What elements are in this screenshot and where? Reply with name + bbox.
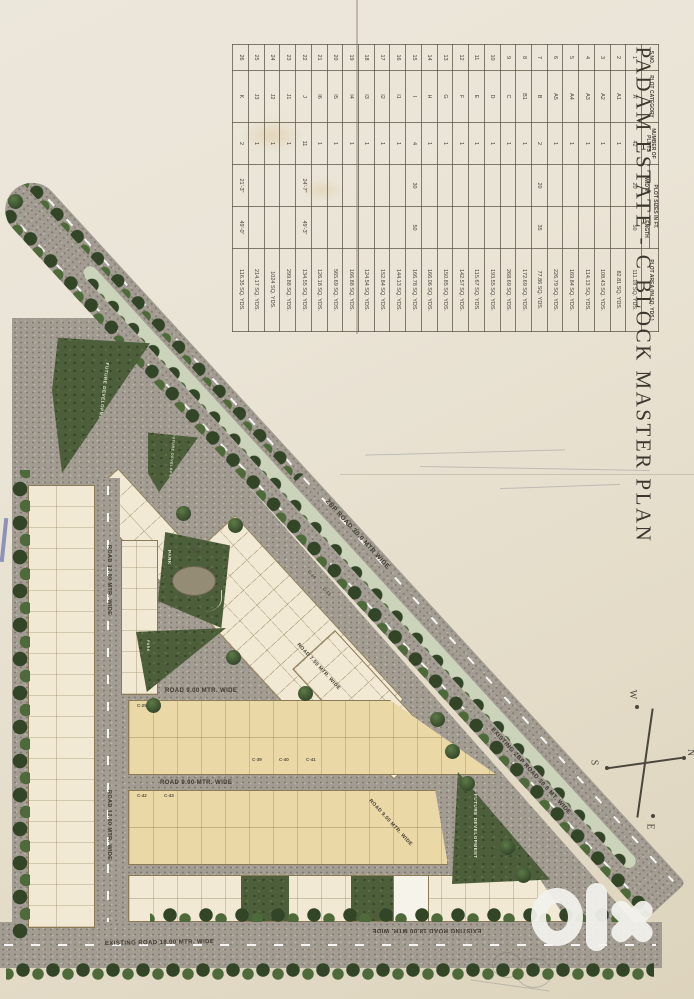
table-cell <box>563 207 579 249</box>
table-row: 18I31124.54 SQ. YDS. <box>359 45 375 332</box>
table-cell: 2 <box>531 123 547 165</box>
compass-icon: W N E S <box>585 685 694 835</box>
park-path <box>192 590 222 612</box>
table-row: 8B11172.69 SQ. YDS. <box>516 45 532 332</box>
table-cell: 299.88 SQ. YDS. <box>280 249 296 332</box>
table-cell: I6 <box>311 71 327 123</box>
table-cell <box>390 207 406 249</box>
table-cell <box>484 165 500 207</box>
compass-dot <box>651 814 655 818</box>
table-cell: 49'-3" <box>296 207 312 249</box>
table-cell <box>327 207 343 249</box>
table-cell <box>516 165 532 207</box>
left-plots-column <box>28 485 95 928</box>
table-cell: 1 <box>421 123 437 165</box>
table-row: 3A21108.43 SQ. YDS. <box>594 45 610 332</box>
road-label-9m: ROAD 9.00 MTR. WIDE <box>165 688 237 694</box>
table-cell <box>264 165 280 207</box>
table-cell <box>311 207 327 249</box>
table-cell <box>547 207 563 249</box>
table-row: 17I21152.84 SQ. YDS. <box>374 45 390 332</box>
table-cell: 226.79 SQ. YDS. <box>547 249 563 332</box>
table-cell: 77.86 SQ. YDS. <box>531 249 547 332</box>
road-label-12m: ROAD 12.00 MTR. WIDE <box>106 545 112 615</box>
table-row: 16I11144.13 SQ. YDS. <box>390 45 406 332</box>
table-cell: I5 <box>327 71 343 123</box>
tree-icon <box>146 698 161 713</box>
table-cell: 11 <box>296 123 312 165</box>
table-cell: 1 <box>594 123 610 165</box>
table-cell <box>563 165 579 207</box>
table-cell: B1 <box>516 71 532 123</box>
plot-label: C-25 <box>137 703 147 708</box>
table-cell: 35 <box>531 207 547 249</box>
table-cell: 214.17 SQ. YDS. <box>249 249 265 332</box>
table-cell: A4 <box>563 71 579 123</box>
table-cell: J3 <box>249 71 265 123</box>
table-cell: 18 <box>359 45 375 71</box>
table-cell: 12 <box>453 45 469 71</box>
table-row: 6A51226.79 SQ. YDS. <box>547 45 563 332</box>
table-cell: 1 <box>374 123 390 165</box>
table-cell: 150.85 SQ. YDS. <box>437 249 453 332</box>
table-cell: 172.69 SQ. YDS. <box>516 249 532 332</box>
table-cell <box>374 207 390 249</box>
table-cell: 23 <box>280 45 296 71</box>
table-row: 13G1150.85 SQ. YDS. <box>437 45 453 332</box>
table-cell <box>594 165 610 207</box>
table-cell: 30 <box>406 165 422 207</box>
table-cell: D <box>484 71 500 123</box>
table-row: 9C1268.69 SQ. YDS. <box>500 45 516 332</box>
table-cell: 15 <box>406 45 422 71</box>
table-cell: E <box>469 71 485 123</box>
plot-label: C-39 <box>252 757 262 762</box>
table-cell: C <box>500 71 516 123</box>
compass-east: E <box>645 823 656 829</box>
table-cell: 144.13 SQ. YDS. <box>390 249 406 332</box>
table-cell: 1 <box>469 123 485 165</box>
table-cell <box>579 165 595 207</box>
pencil-scribble <box>500 484 620 489</box>
table-cell: 142.57 SQ. YDS. <box>453 249 469 332</box>
table-cell: 1 <box>516 123 532 165</box>
table-cell: J2 <box>264 71 280 123</box>
olx-o-shape <box>531 888 583 946</box>
plot-table-body: 1A422050111.18 SQ. YDS.2A1182.81 SQ. YDS… <box>233 45 642 332</box>
table-cell: 169.84 SQ. YDS. <box>563 249 579 332</box>
table-cell: 1 <box>484 123 500 165</box>
table-cell <box>327 165 343 207</box>
table-cell <box>484 207 500 249</box>
table-cell: 193.55 SQ. YDS. <box>484 249 500 332</box>
tree-icon <box>228 518 243 533</box>
plot-table-wrap: S.NO. PLOT CATEGORY NUMBER OF PLOTS PLOT… <box>232 44 659 331</box>
plot-label: C-43 <box>164 793 174 798</box>
table-cell: 1 <box>500 123 516 165</box>
table-cell <box>579 207 595 249</box>
table-row: 7B2203577.86 SQ. YDS. <box>531 45 547 332</box>
plot-band <box>128 790 448 865</box>
tree-column <box>6 470 30 940</box>
table-cell: 1 <box>280 123 296 165</box>
table-cell: 4 <box>579 45 595 71</box>
table-cell: 1 <box>249 123 265 165</box>
table-cell: 20 <box>327 45 343 71</box>
table-cell <box>249 165 265 207</box>
table-cell: 17 <box>374 45 390 71</box>
table-cell: A3 <box>579 71 595 123</box>
table-cell: 8 <box>516 45 532 71</box>
table-cell: 1 <box>327 123 343 165</box>
table-cell: 7 <box>531 45 547 71</box>
table-cell <box>280 207 296 249</box>
tree-icon <box>445 744 460 759</box>
table-cell: 1 <box>563 123 579 165</box>
table-cell: F <box>453 71 469 123</box>
tree-icon <box>226 650 241 665</box>
table-cell: I2 <box>374 71 390 123</box>
tree-icon <box>500 840 515 855</box>
table-cell: B <box>531 71 547 123</box>
road-label-12m: ROAD 12.00 MTR. WIDE <box>106 790 112 860</box>
table-cell: 24'-7" <box>296 165 312 207</box>
table-cell: G <box>437 71 453 123</box>
table-cell: J1 <box>280 71 296 123</box>
table-cell: 1 <box>311 123 327 165</box>
table-cell <box>469 207 485 249</box>
compass-south: S <box>588 760 599 766</box>
fold-line <box>356 0 358 334</box>
pencil-scribble <box>365 449 565 455</box>
compass-dot <box>605 766 609 770</box>
table-cell <box>547 165 563 207</box>
table-cell <box>594 207 610 249</box>
area-label: PARK <box>146 640 150 652</box>
table-cell <box>359 165 375 207</box>
table-cell: 114.13 SQ. YDS. <box>579 249 595 332</box>
table-row: 25J31214.17 SQ. YDS. <box>249 45 265 332</box>
compass-dot <box>635 705 639 709</box>
table-cell <box>374 165 390 207</box>
tree-icon <box>176 506 191 521</box>
table-cell: 565.69 SQ. YDS. <box>327 249 343 332</box>
plot-label: C-42 <box>137 793 147 798</box>
table-cell: K <box>233 71 249 123</box>
table-cell: 1024 SQ. YDS. <box>264 249 280 332</box>
table-cell: I1 <box>390 71 406 123</box>
table-cell <box>249 207 265 249</box>
table-cell: 49'-0" <box>233 207 249 249</box>
table-row: 12F1142.57 SQ. YDS. <box>453 45 469 332</box>
table-cell <box>453 165 469 207</box>
table-row: 11E1115.67 SQ. YDS. <box>469 45 485 332</box>
table-cell: 1 <box>579 123 595 165</box>
table-cell: 22 <box>296 45 312 71</box>
table-cell: A5 <box>547 71 563 123</box>
area-label: PARK <box>167 550 172 565</box>
olx-l-shape <box>586 883 607 951</box>
table-row: 5A41169.84 SQ. YDS. <box>563 45 579 332</box>
table-row: 26K221'-3"49'-0"116.35 SQ. YDS. <box>233 45 249 332</box>
table-cell <box>437 207 453 249</box>
table-cell <box>500 207 516 249</box>
table-cell: 126.18 SQ. YDS. <box>311 249 327 332</box>
olx-watermark <box>528 880 694 975</box>
table-cell: 20 <box>531 165 547 207</box>
table-cell: 152.84 SQ. YDS. <box>374 249 390 332</box>
compass-north: N <box>685 749 694 756</box>
table-cell: 166.78 SQ. YDS. <box>406 249 422 332</box>
table-cell <box>421 165 437 207</box>
table-cell: 21'-3" <box>233 165 249 207</box>
plot-label: C-41 <box>306 757 316 762</box>
table-cell: 10 <box>484 45 500 71</box>
table-cell: 116.35 SQ. YDS. <box>233 249 249 332</box>
table-cell: 16 <box>390 45 406 71</box>
table-cell: 108.43 SQ. YDS. <box>594 249 610 332</box>
table-cell <box>421 207 437 249</box>
table-cell: 1 <box>359 123 375 165</box>
table-cell: 1 <box>547 123 563 165</box>
table-cell: 268.69 SQ. YDS. <box>500 249 516 332</box>
table-cell: 124.54 SQ. YDS. <box>359 249 375 332</box>
table-row: 14H1166.06 SQ. YDS. <box>421 45 437 332</box>
table-row: 10D1193.55 SQ. YDS. <box>484 45 500 332</box>
table-cell: 26 <box>233 45 249 71</box>
table-row: 22J1124'-7"49'-3"134.55 SQ. YDS. <box>296 45 312 332</box>
table-cell <box>264 207 280 249</box>
table-cell <box>516 207 532 249</box>
compass-dot <box>682 756 686 760</box>
plot-table: S.NO. PLOT CATEGORY NUMBER OF PLOTS PLOT… <box>232 44 659 332</box>
table-cell: 24 <box>264 45 280 71</box>
table-cell: 1 <box>437 123 453 165</box>
table-cell: 9 <box>500 45 516 71</box>
table-cell: 2 <box>233 123 249 165</box>
area-label: FUTURE DEVELOPMENT <box>473 794 478 859</box>
table-row: 20I51565.69 SQ. YDS. <box>327 45 343 332</box>
tree-icon <box>430 712 445 727</box>
table-row: 23J11299.88 SQ. YDS. <box>280 45 296 332</box>
table-cell: H <box>421 71 437 123</box>
table-cell: 1 <box>264 123 280 165</box>
table-cell: 13 <box>437 45 453 71</box>
compass-west: W <box>627 690 638 699</box>
road-label-9m: ROAD 9.00 MTR. WIDE <box>160 780 232 786</box>
table-row: 24J211024 SQ. YDS. <box>264 45 280 332</box>
table-cell <box>500 165 516 207</box>
table-cell: 11 <box>469 45 485 71</box>
road-label-existing-18-flipped: EXISTING ROAD 18.00 MTR. WIDE <box>372 927 481 933</box>
master-plan-photo: S.NO. PLOT CATEGORY NUMBER OF PLOTS PLOT… <box>0 0 694 999</box>
table-cell: 5 <box>563 45 579 71</box>
table-cell <box>280 165 296 207</box>
table-cell: I3 <box>359 71 375 123</box>
table-cell: 166.06 SQ. YDS. <box>421 249 437 332</box>
tree-icon <box>460 776 475 791</box>
table-cell: A2 <box>594 71 610 123</box>
table-cell <box>469 165 485 207</box>
table-cell <box>437 165 453 207</box>
table-cell <box>311 165 327 207</box>
table-cell <box>359 207 375 249</box>
table-cell: 50 <box>406 207 422 249</box>
table-cell <box>453 207 469 249</box>
tree-icon <box>8 194 23 209</box>
table-cell: 1 <box>453 123 469 165</box>
fold-crease <box>340 474 694 475</box>
table-cell: 21 <box>311 45 327 71</box>
table-cell <box>390 165 406 207</box>
table-cell: 4 <box>406 123 422 165</box>
table-cell: J <box>296 71 312 123</box>
plot-label: C-40 <box>279 757 289 762</box>
table-cell: 1 <box>390 123 406 165</box>
table-cell: 25 <box>249 45 265 71</box>
table-cell: 14 <box>421 45 437 71</box>
table-row: 15I43050166.78 SQ. YDS. <box>406 45 422 332</box>
table-cell: 134.55 SQ. YDS. <box>296 249 312 332</box>
table-row: 21I61126.18 SQ. YDS. <box>311 45 327 332</box>
page-title: PADAM ESTATE - C BLOCK MASTER PLAN <box>612 47 656 492</box>
table-cell: 115.67 SQ. YDS. <box>469 249 485 332</box>
table-cell: 6 <box>547 45 563 71</box>
table-cell: I <box>406 71 422 123</box>
tree-icon <box>298 686 313 701</box>
table-row: 4A31114.13 SQ. YDS. <box>579 45 595 332</box>
table-cell: 3 <box>594 45 610 71</box>
